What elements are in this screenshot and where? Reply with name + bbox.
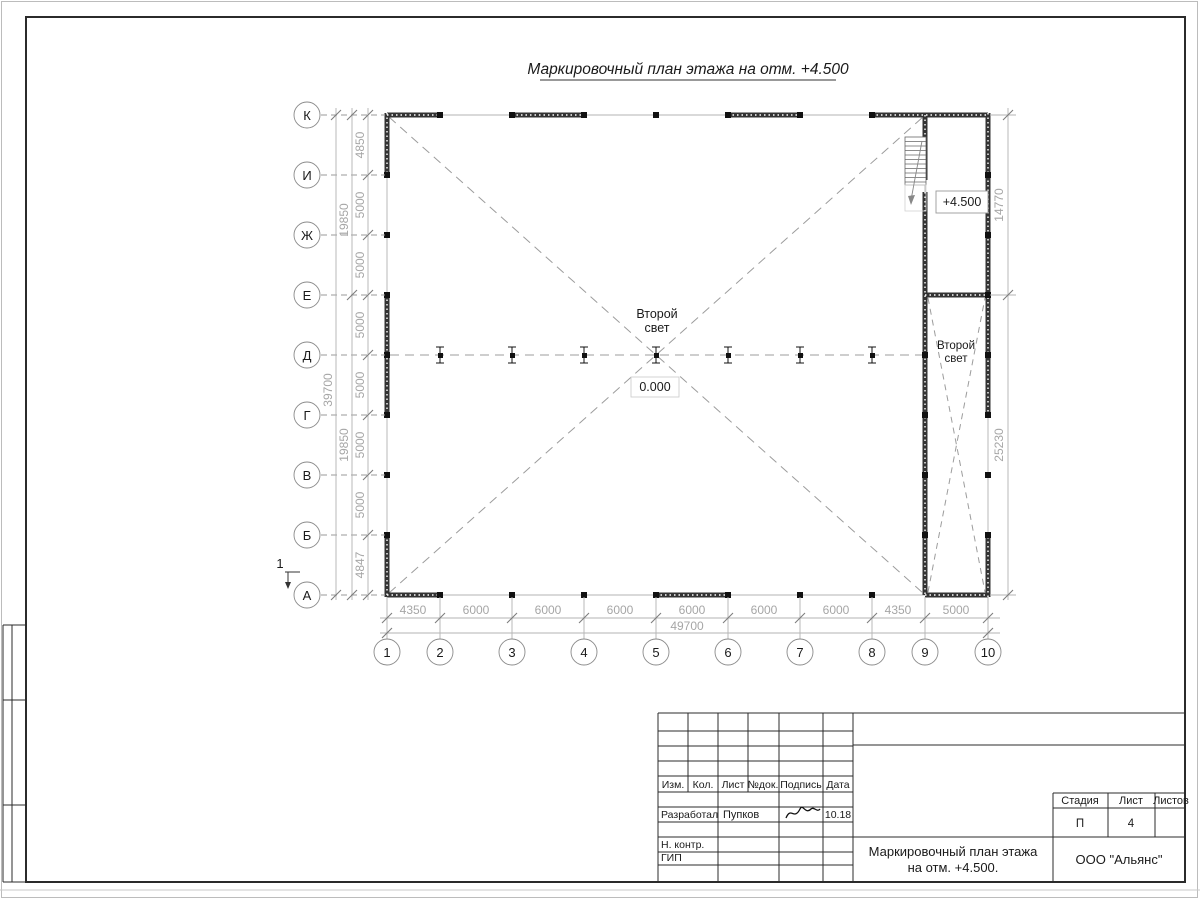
col-axis-label: 4 [580, 645, 587, 660]
dim-left-step: 5000 [353, 431, 367, 458]
drawing-frame [26, 17, 1185, 882]
second-light-right-label-line2: свет [944, 353, 968, 365]
dim-bottom-step: 6000 [751, 603, 778, 617]
row-axis-label: Ж [301, 228, 313, 243]
dim-left-span: 19850 [337, 428, 351, 462]
dim-right-upper: 14770 [992, 188, 1006, 222]
upper-level-label: +4.500 [943, 195, 982, 209]
right-dimensions: 14770 25230 [990, 108, 1016, 600]
col-axis-label: 2 [436, 645, 443, 660]
developed-label: Разработал [661, 809, 718, 821]
section-mark-number: 1 [276, 556, 283, 571]
dim-right-lower: 25230 [992, 428, 1006, 462]
page-title: Маркировочный план этажа на отм. +4.500 [527, 61, 849, 78]
dim-left-step: 4847 [353, 551, 367, 578]
dim-bottom-step: 6000 [463, 603, 490, 617]
dim-bottom-step: 4350 [885, 603, 912, 617]
dim-left-step: 4850 [353, 131, 367, 158]
sheet-header: Лист [1119, 795, 1143, 807]
dim-left-step: 5000 [353, 191, 367, 218]
second-light-main-label-line2: свет [644, 321, 669, 335]
dim-left-step: 5000 [353, 491, 367, 518]
row-axis-label: Г [303, 408, 310, 423]
dim-bottom-step: 6000 [823, 603, 850, 617]
rev-header-kol: Кол. [693, 779, 714, 791]
walls [387, 113, 988, 597]
sheet-edge [0, 2, 1200, 898]
drawing-title: Маркировочный план этажа на отм. +4.500 [527, 61, 849, 80]
revision-header-row: Изм. Кол. Лист №док. Подпись Дата [662, 779, 850, 791]
company-name: ООО "Альянс" [1076, 852, 1163, 867]
row-axis-bubbles: К И Ж Е Д Г В Б А [294, 102, 320, 608]
row-axis-label: Е [303, 288, 312, 303]
left-dimensions: 4850 5000 5000 5000 5000 5000 5000 4847 … [321, 108, 373, 600]
sheet-value: 4 [1128, 818, 1135, 830]
dim-bottom-step: 6000 [607, 603, 634, 617]
signature-autograph [786, 807, 820, 818]
row-axis-label: Б [303, 528, 312, 543]
col-axis-label: 8 [868, 645, 875, 660]
gip-label: ГИП [661, 852, 682, 864]
col-axis-label: 1 [383, 645, 390, 660]
developed-name: Пупков [723, 809, 759, 821]
col-axis-label: 6 [724, 645, 731, 660]
rev-header-podpis: Подпись [780, 779, 822, 791]
stage-header: Стадия [1061, 795, 1099, 807]
section-arrow [285, 582, 291, 589]
wall-baselines [387, 115, 988, 595]
stage-value: П [1076, 818, 1084, 830]
doc-title-line2: на отм. +4.500. [908, 860, 999, 875]
dim-left-step: 5000 [353, 251, 367, 278]
dim-left-total: 39700 [321, 373, 335, 407]
col-axis-label: 5 [652, 645, 659, 660]
dim-bottom-total: 49700 [670, 619, 704, 633]
col-axis-bubbles: 1 2 3 4 5 6 7 8 9 10 [374, 639, 1001, 665]
developed-date: 10.18 [825, 809, 851, 821]
sheets-header: Листов [1153, 795, 1189, 807]
doc-title-line1: Маркировочный план этажа [869, 844, 1038, 859]
col-axis-label: 3 [508, 645, 515, 660]
col-axis-label: 9 [921, 645, 928, 660]
col-axis-label: 10 [981, 645, 995, 660]
dim-bottom-step: 5000 [943, 603, 970, 617]
doc-title-block: Маркировочный план этажа на отм. +4.500.… [869, 844, 1163, 875]
dim-bottom-step: 6000 [535, 603, 562, 617]
rev-header-izm: Изм. [662, 779, 685, 791]
row-axis-leaders [321, 115, 385, 595]
rev-header-list: Лист [722, 779, 745, 791]
rev-header-data: Дата [826, 779, 849, 791]
row-axis-label: Д [303, 348, 312, 363]
rev-header-ndok: №док. [748, 779, 779, 791]
row-axis-label: А [303, 588, 312, 603]
wall-column-marks [384, 112, 991, 598]
drawing-sheet: Маркировочный план этажа на отм. +4.500 [0, 0, 1200, 900]
stair-direction-arrow [908, 195, 915, 205]
dim-bottom-step: 4350 [400, 603, 427, 617]
left-margin-stamp [3, 625, 26, 882]
bottom-dimensions: 4350 6000 6000 6000 6000 6000 6000 4350 … [374, 597, 1001, 665]
ncontrol-label: Н. контр. [661, 839, 704, 851]
row-axis-label: И [302, 168, 311, 183]
dim-left-step: 5000 [353, 371, 367, 398]
stage-sheet-block: Стадия Лист Листов П 4 [1061, 795, 1189, 830]
col-axis-label: 7 [796, 645, 803, 660]
dim-left-span: 19850 [337, 203, 351, 237]
section-mark: 1 [276, 556, 300, 589]
second-light-right-label-line1: Второй [937, 340, 975, 352]
dim-bottom-step: 6000 [679, 603, 706, 617]
dim-left-step: 5000 [353, 311, 367, 338]
zero-level-label: 0.000 [639, 380, 670, 394]
row-axis-label: К [303, 108, 311, 123]
second-light-main-label-line1: Второй [636, 307, 677, 321]
row-axis-label: В [303, 468, 312, 483]
title-block: Изм. Кол. Лист №док. Подпись Дата Разраб… [658, 713, 1189, 882]
